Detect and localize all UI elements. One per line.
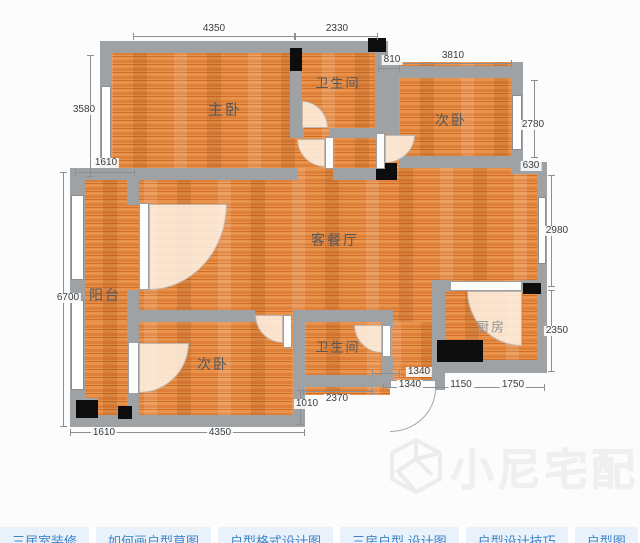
wall-bedroom3-left-a xyxy=(127,322,139,342)
room-label-bedroom-bottom: 次卧 xyxy=(197,354,229,374)
window-master-left xyxy=(101,86,111,160)
dim-step-height: 630 xyxy=(521,161,542,171)
column-marker-top-bath xyxy=(290,48,302,71)
dim-bedroom3-width: 4350 xyxy=(207,428,233,438)
wall-living-top-b xyxy=(333,168,378,180)
wall-kitchen-top-a xyxy=(432,280,450,292)
door-leaf-hall xyxy=(325,137,334,169)
dim-line-entry-a xyxy=(372,373,400,374)
door-leaf-bedroom3-top xyxy=(283,315,292,348)
footer-tag[interactable]: 三居室装修 xyxy=(0,527,89,543)
door-leaf-bedroom2 xyxy=(376,133,385,169)
door-swing-entry xyxy=(390,388,436,432)
counter-marker-kitchen xyxy=(437,340,483,362)
floor-plan: 主卧 卫生间 次卧 客餐厅 阳台 次卧 卫生间 厨房 4350 2330 810… xyxy=(0,0,640,543)
wall-bottom-outer xyxy=(70,415,305,427)
dim-line-bedroom2-top xyxy=(399,63,512,64)
dim-shaft-width: 810 xyxy=(382,55,403,65)
door-leaf-balcony-living xyxy=(139,203,149,290)
footer-tag[interactable]: 如何画户型草图 xyxy=(96,527,211,543)
column-marker-shaft xyxy=(368,38,386,52)
watermark: 小尼宅配 xyxy=(388,434,638,498)
wall-bedroom2-bottom xyxy=(399,156,523,168)
dim-line-master-left xyxy=(90,55,91,177)
column-marker-balcony-big xyxy=(76,400,98,418)
door-leaf-kitchen xyxy=(450,281,522,291)
wall-bath-bottom-b xyxy=(330,128,378,138)
room-label-kitchen: 厨房 xyxy=(476,317,506,336)
watermark-text: 小尼宅配 xyxy=(450,434,638,498)
door-leaf-bath2 xyxy=(382,325,391,357)
dim-living-height: 2980 xyxy=(544,226,570,236)
wall-bath-bottom-a xyxy=(290,128,304,138)
wall-bath2-bottom xyxy=(293,375,393,387)
dim-balcony-width-bottom: 1610 xyxy=(91,428,117,438)
dim-entry-step: 1010 xyxy=(294,399,320,409)
wall-top-bedroom2 xyxy=(387,66,523,78)
door-leaf-balcony-bedroom3 xyxy=(128,342,139,394)
footer-tag-bar: 三居室装修 如何画户型草图 户型格式设计图 三房户型 设计图 户型设计技巧 户型… xyxy=(0,527,640,543)
dim-balcony-width-top: 1610 xyxy=(93,158,119,168)
dim-line-shaft xyxy=(378,68,400,69)
dim-bedroom2-width: 3810 xyxy=(440,51,466,61)
dim-line-balcony-top xyxy=(75,172,135,173)
room-label-living-dining: 客餐厅 xyxy=(311,230,359,250)
window-balcony-lower xyxy=(71,300,84,390)
wall-balcony-sep-a xyxy=(127,180,139,205)
dim-entry-width-a: 1340 xyxy=(406,367,432,377)
dim-kitchen-height: 2350 xyxy=(544,326,570,336)
dim-kitchen-door-width: 1150 xyxy=(448,380,474,390)
footer-tag[interactable]: 户型图 xyxy=(575,527,638,543)
dim-line-top-master xyxy=(133,36,295,37)
dim-kitchen-width: 1750 xyxy=(500,380,526,390)
wall-balcony-sep-b xyxy=(127,290,139,322)
room-label-bedroom-top-right: 次卧 xyxy=(435,110,467,130)
footer-tag[interactable]: 三房户型 设计图 xyxy=(340,527,459,543)
window-balcony-upper xyxy=(71,195,84,280)
wall-living-bottom-b xyxy=(293,310,393,322)
room-label-bathroom-top: 卫生间 xyxy=(315,73,360,92)
dim-top-master-width: 4350 xyxy=(201,24,227,34)
wall-bedroom2-left xyxy=(387,62,399,135)
footer-tag[interactable]: 户型格式设计图 xyxy=(218,527,333,543)
dim-line-top-bath xyxy=(295,36,378,37)
room-label-master-bedroom: 主卧 xyxy=(208,99,242,120)
wall-living-bottom-a xyxy=(139,310,255,322)
column-marker-balcony-small xyxy=(118,406,132,419)
floor-master-bath-block xyxy=(100,41,388,180)
dim-line-bath2-bottom xyxy=(303,391,373,392)
wall-living-top-a xyxy=(70,168,297,180)
wall-top-main xyxy=(100,41,388,53)
dim-balcony-height: 6700 xyxy=(55,293,81,303)
footer-tag[interactable]: 户型设计技巧 xyxy=(466,527,568,543)
dim-top-bath-width: 2330 xyxy=(324,24,350,34)
dim-bath2-width: 2370 xyxy=(324,394,350,404)
room-label-balcony: 阳台 xyxy=(89,285,121,305)
dim-entry-width-b: 1340 xyxy=(397,380,423,390)
dim-bedroom2-height: 2780 xyxy=(520,120,546,130)
column-marker-kitchen-top xyxy=(523,283,541,294)
room-label-bathroom-bottom: 卫生间 xyxy=(315,337,360,356)
dim-master-height: 3580 xyxy=(71,105,97,115)
cube-logo-icon xyxy=(388,437,444,495)
